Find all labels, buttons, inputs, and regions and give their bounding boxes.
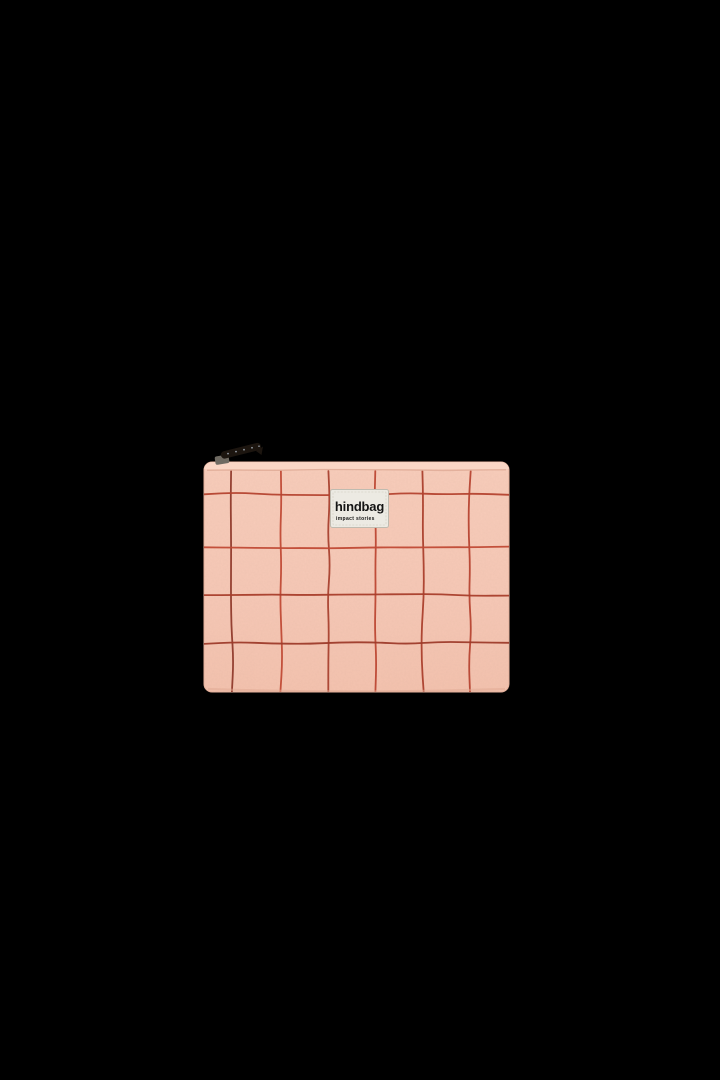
product-photo-pouch: hindbag impact stories bbox=[0, 0, 720, 1080]
brand-label: hindbag impact stories bbox=[331, 490, 389, 528]
pouch: hindbag impact stories bbox=[204, 442, 509, 692]
brand-label-title: hindbag bbox=[335, 499, 384, 514]
product-image-canvas: hindbag impact stories bbox=[0, 0, 720, 1080]
zipper-tape-band bbox=[204, 462, 509, 469]
brand-label-subtitle: impact stories bbox=[336, 516, 375, 522]
zipper-strap bbox=[220, 442, 262, 459]
